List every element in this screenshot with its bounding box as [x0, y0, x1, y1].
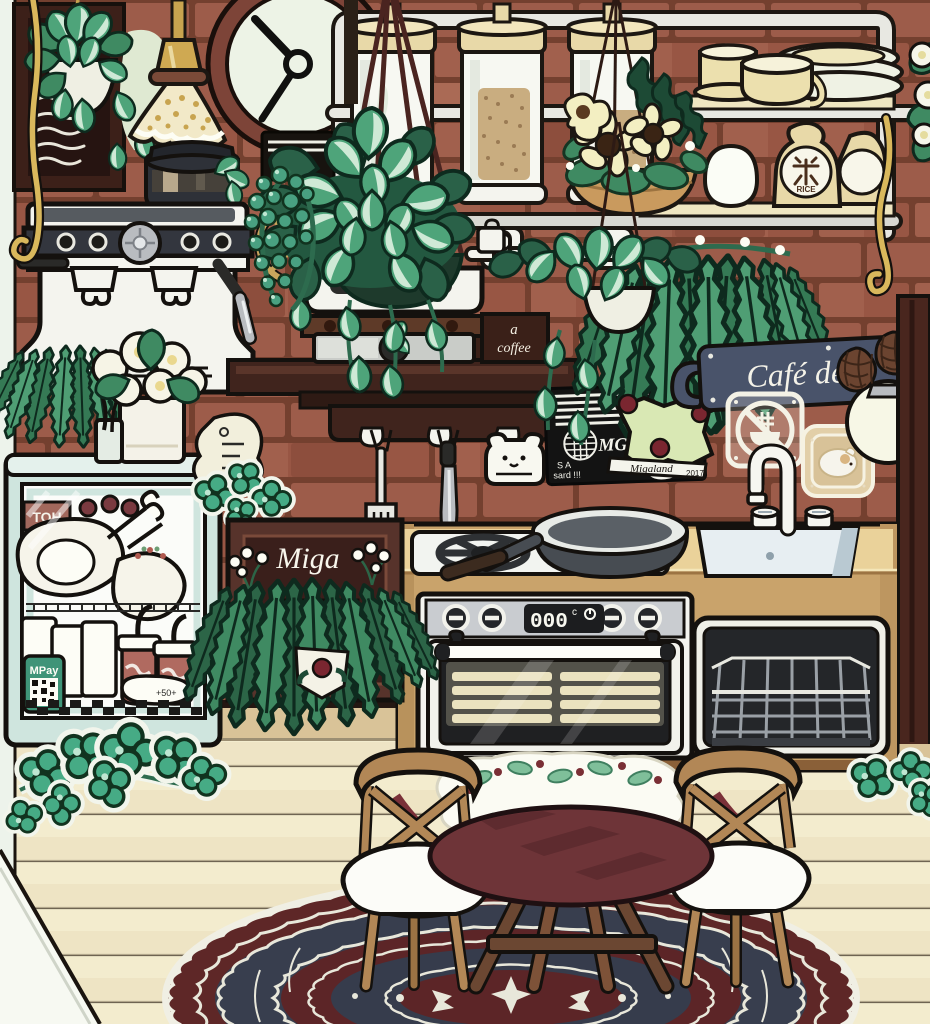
svg-text:2017: 2017: [686, 469, 704, 478]
svg-text:000: 000: [530, 611, 568, 634]
svg-text:c: c: [572, 607, 577, 618]
svg-text:a: a: [510, 322, 518, 338]
svg-text:Café de: Café de: [745, 353, 845, 394]
svg-text:MPay: MPay: [30, 665, 60, 677]
svg-text:Migaland: Migaland: [629, 463, 673, 475]
svg-text:RICE: RICE: [796, 185, 816, 194]
svg-text:S A: S A: [557, 460, 571, 470]
svg-text:sard !!!: sard !!!: [553, 470, 581, 481]
svg-text:coffee: coffee: [497, 341, 530, 356]
svg-text:+50+: +50+: [156, 688, 177, 698]
svg-text:Miga: Miga: [275, 542, 339, 575]
